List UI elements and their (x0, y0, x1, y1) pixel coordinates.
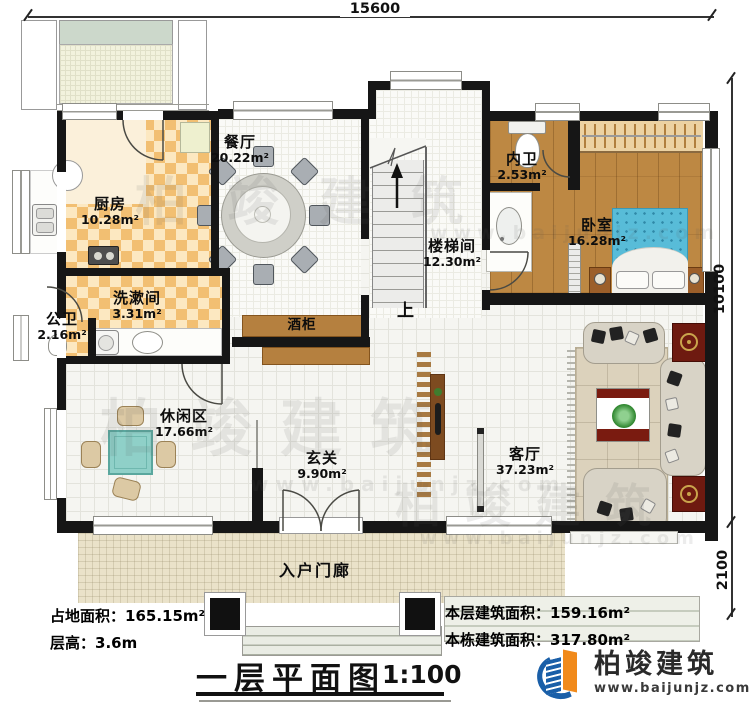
stat-floor-area: 本层建筑面积：159.16m² (445, 602, 630, 623)
stair-break-mask (370, 138, 426, 168)
door-arc-washroom (182, 364, 222, 404)
dimension-right-main-label: 10100 (712, 259, 728, 319)
room-label-public-bath: 公卫 2.16m² (22, 311, 102, 342)
stat-label: 本层建筑面积： (445, 604, 550, 622)
stat-value: 159.16m² (550, 604, 630, 622)
room-label-leisure: 休闲区 17.66m² (142, 408, 226, 439)
dimension-right-porch-label: 2100 (715, 540, 731, 600)
stat-floor-height: 层高：3.6m (50, 632, 137, 653)
room-label-foyer: 玄关 9.90m² (282, 450, 362, 481)
door-arc-bedroom (490, 252, 528, 290)
dimension-top-label: 15600 (340, 1, 410, 17)
stat-label: 本栋建筑面积： (445, 631, 550, 649)
brand-company: 柏竣建筑 (594, 651, 750, 678)
room-label-inner-bath: 内卫 2.53m² (482, 151, 562, 182)
room-label-living: 客厅 37.23m² (485, 446, 565, 477)
room-label-stairwell: 楼梯间 12.30m² (410, 238, 494, 269)
door-arc-kitchen (123, 120, 163, 160)
floorplan-sheet: 15600 10100 2100 (0, 0, 750, 711)
room-label-kitchen: 厨房 10.28m² (70, 196, 150, 227)
room-label-porch: 入户门廊 (255, 562, 375, 580)
room-label-bedroom: 卧室 16.28m² (557, 217, 637, 248)
stat-label: 层高： (50, 634, 95, 652)
logo-building-orange (563, 650, 577, 693)
wine-cabinet-label: 酒柜 (242, 318, 362, 333)
stairs-up-label: 上 (392, 302, 420, 321)
stair-arrow-head (391, 163, 403, 178)
room-label-washroom: 洗漱间 3.31m² (95, 290, 179, 321)
brand-logo-icon (536, 647, 588, 703)
door-arc-entry-right (321, 490, 359, 531)
brand-block: 柏竣建筑 www.baijunjz.com (536, 645, 746, 707)
room-label-dining: 餐厅 20.22m² (200, 134, 280, 165)
stat-value: 165.15m² (125, 607, 205, 625)
stat-value: 3.6m (95, 634, 137, 652)
stat-land-area: 占地面积：165.15m² (50, 605, 205, 626)
brand-text: 柏竣建筑 www.baijunjz.com (594, 651, 750, 696)
brand-website: www.baijunjz.com (594, 681, 750, 696)
title-underline-thin (199, 700, 451, 702)
stat-label: 占地面积： (50, 607, 125, 625)
door-arc-entry-left (283, 490, 321, 531)
title-underline (196, 692, 444, 696)
logo-building-blue (546, 657, 561, 695)
drawing-scale: 1:100 (382, 660, 462, 689)
